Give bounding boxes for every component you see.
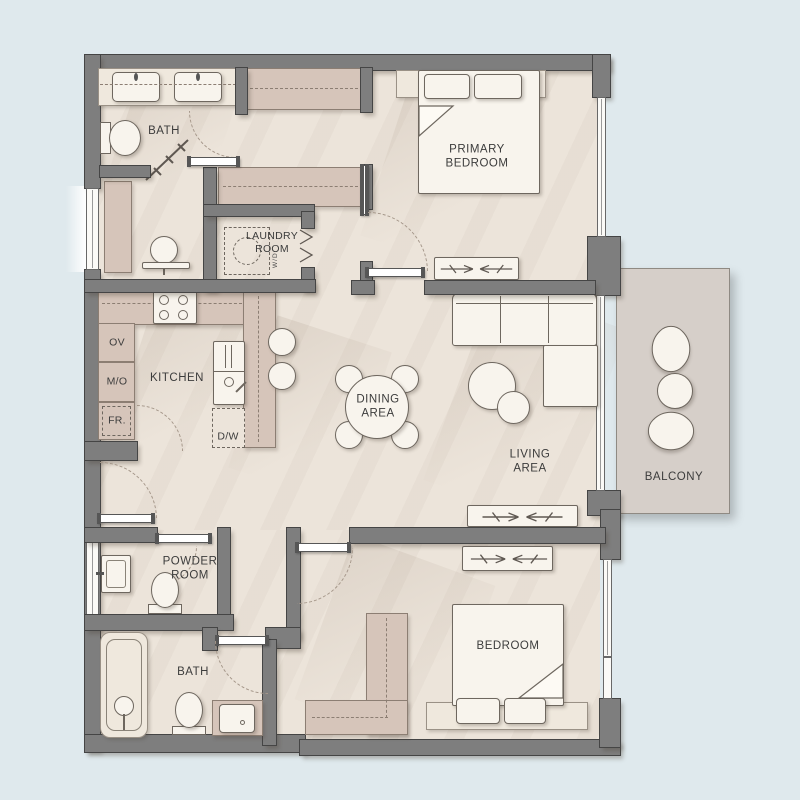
bedroom: BEDROOM <box>0 0 800 800</box>
wardrobe-dash <box>312 717 388 718</box>
dresser-arrows <box>469 553 549 565</box>
pillow <box>504 698 546 724</box>
bed-fold <box>519 664 563 698</box>
floor-plan: BALCONY BATH <box>0 0 800 800</box>
bedroom-dresser <box>462 546 553 571</box>
bedroom-label: BEDROOM <box>477 639 540 653</box>
wardrobe-dash <box>386 618 387 718</box>
pillow <box>456 698 500 724</box>
